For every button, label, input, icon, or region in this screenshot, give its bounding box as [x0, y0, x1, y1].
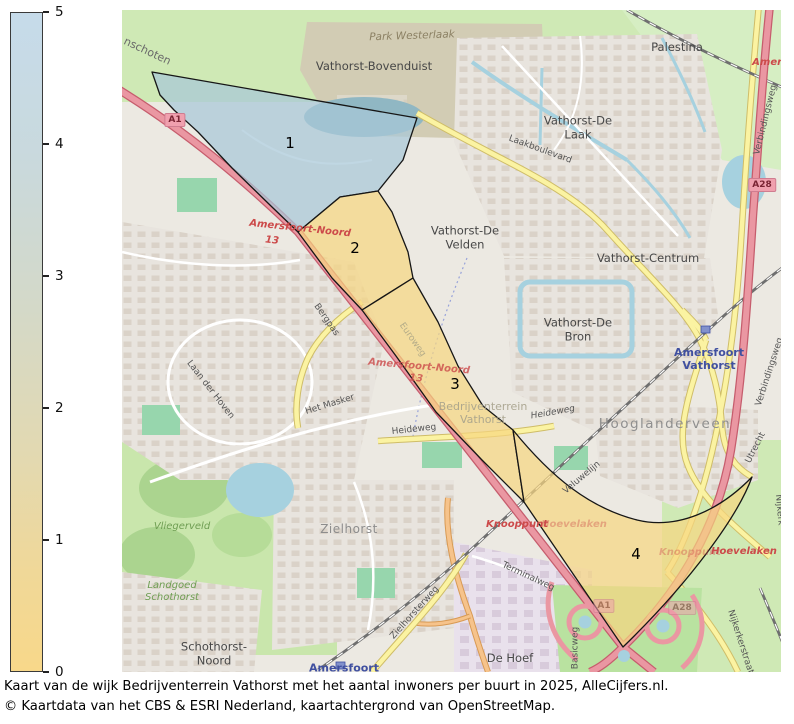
caption-line-2: © Kaartdata van het CBS & ESRI Nederland…: [4, 697, 790, 717]
legend-tick-4: 4: [43, 136, 64, 152]
map-caption: Kaart van de wijk Bedrijventerrein Vatho…: [4, 677, 790, 716]
station-icon-vathorst: [701, 326, 710, 333]
station-icon-schothorst: [336, 662, 345, 669]
map-base: [122, 10, 781, 672]
legend-tick-3: 3: [43, 268, 64, 284]
legend-tick-1: 1: [43, 532, 64, 548]
color-legend: 543210: [10, 12, 43, 672]
legend-gradient-bar: [10, 12, 43, 672]
legend-tick-2: 2: [43, 400, 64, 416]
map-canvas[interactable]: nschotenPark WesterlaakVathorst-Bovendui…: [122, 10, 781, 672]
caption-line-1: Kaart van de wijk Bedrijventerrein Vatho…: [4, 677, 790, 697]
legend-tick-5: 5: [43, 4, 64, 20]
